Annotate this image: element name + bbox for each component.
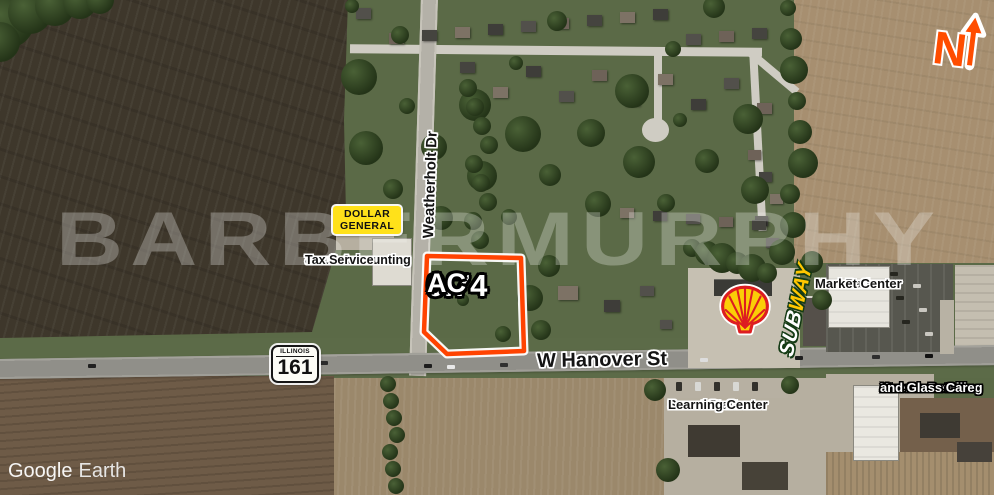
shell-logo-icon	[719, 284, 771, 334]
north-arrow-icon: N	[930, 12, 990, 76]
parcel-boundary	[0, 0, 994, 495]
dg-line1: DOLLAR	[340, 208, 394, 220]
aerial-map: BARBERMURPHY N DOLLAR GENERAL Traub A	[0, 0, 994, 495]
google-wordmark: Google	[8, 460, 73, 482]
north-label: N	[930, 21, 969, 77]
dollar-general-sign: DOLLAR GENERAL	[333, 206, 401, 234]
street-label-hanover: W Hanover St	[537, 348, 667, 373]
google-earth-attribution: GoogleEarth	[8, 460, 126, 483]
route-shield-il-161: ILLINOIS 161	[271, 345, 319, 383]
dg-line2: GENERAL	[340, 220, 394, 232]
